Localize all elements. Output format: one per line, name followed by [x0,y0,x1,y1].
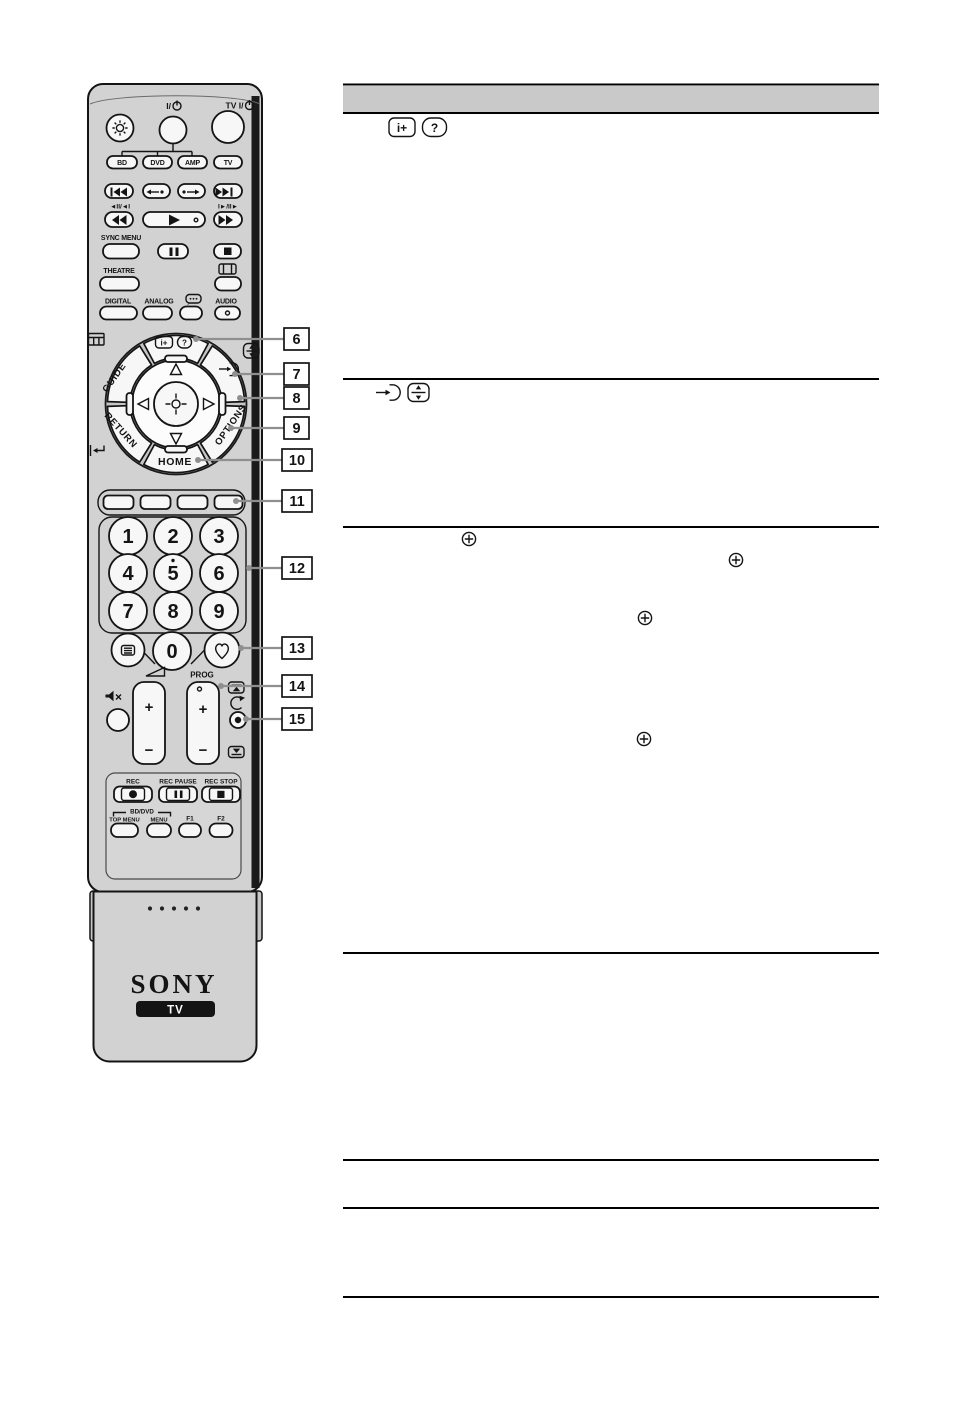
confirm-icon-2 [729,553,742,566]
subtitles-button [180,307,202,320]
svg-text:12: 12 [289,561,305,577]
svg-text:?: ? [431,121,438,135]
stop-icon [224,248,232,256]
svg-text:i+: i+ [397,121,407,135]
analog-label: ANALOG [144,299,174,306]
digit-0: 0 [166,641,177,663]
digit-7: 7 [122,601,133,623]
dpad-ridge-down [165,446,187,453]
digit-8: 8 [167,601,178,623]
volume-up-label: + [145,699,154,716]
dvd-label: DVD [150,160,164,167]
remote-illustration: SONY TV I/ TV I/ BD DVD AMP [88,84,262,1062]
function-table: i+ ? [343,85,879,1298]
confirm-icon-4 [637,732,650,745]
favorites-button [205,633,240,668]
prog-down-label: − [199,742,208,759]
sync-menu-label: SYNC MENU [101,235,141,242]
dpad-ridge-up [165,356,187,363]
confirm-icon-1 [462,532,475,545]
power-label: I/ [166,101,171,111]
sync-menu-button [103,244,139,259]
digit-2: 2 [167,526,178,548]
svg-text:9: 9 [292,421,300,437]
svg-text:i+: i+ [161,339,168,348]
f2-button [210,824,233,838]
tv-power-label: TV I/ [226,101,245,111]
dpad-ridge-left [127,393,134,415]
pause-button [158,244,188,259]
rec-button [114,787,152,803]
menu-button [147,824,171,838]
digit-1: 1 [122,526,133,548]
digit-5-dot [171,559,174,562]
tv-power-button [212,111,244,143]
f1-label: F1 [186,816,194,823]
tv-select-label: TV [224,160,233,167]
rec-pause-button [159,787,197,803]
yellow-button [178,496,208,510]
rec-label: REC [126,779,140,786]
prog-label: PROG [190,671,214,680]
digital-label: DIGITAL [105,299,132,306]
svg-text:6: 6 [292,332,300,348]
digital-button [100,307,137,320]
theatre-button [100,277,139,291]
rec-stop-icon [217,791,224,798]
amp-label: AMP [185,160,200,167]
digit-3: 3 [213,526,224,548]
table-header-bar [343,86,879,112]
analog-button [143,307,172,320]
remote-side-edge [252,96,260,888]
screen-position-icon [408,384,429,402]
input-select-icon [376,385,400,400]
digit-6: 6 [213,563,224,585]
digit-4: 4 [122,563,134,585]
power-button [160,117,187,144]
home-label: HOME [158,456,192,468]
confirm-button [154,382,198,426]
svg-text:10: 10 [289,453,305,469]
f2-label: F2 [217,816,225,823]
bd-dvd-label: BD/DVD [130,809,154,816]
svg-text:14: 14 [289,679,305,695]
wide-button [215,277,241,291]
svg-text:8: 8 [292,391,300,407]
audio-button [215,307,240,320]
audio-label: AUDIO [215,299,237,306]
mute-button [107,709,129,731]
theatre-label: THEATRE [103,268,135,275]
manual-page: SONY TV I/ TV I/ BD DVD AMP [0,0,964,1418]
rec-stop-label: REC STOP [204,779,238,786]
replay-button [143,184,170,198]
f1-button [179,824,201,838]
svg-text:7: 7 [292,367,300,383]
sony-logo: SONY [130,969,217,999]
tv-badge-label: TV [167,1005,184,1017]
digit-9: 9 [213,601,224,623]
bd-label: BD [117,160,127,167]
red-button [104,496,134,510]
advance-button [178,184,205,198]
info-plus-icon: i+ [389,118,415,137]
round-button-center [235,717,241,723]
svg-text:13: 13 [289,641,305,657]
rec-stop-button [202,787,240,803]
confirm-icon-3 [638,611,651,624]
svg-text:11: 11 [289,494,304,510]
rec-pause-label: REC PAUSE [159,779,197,786]
top-menu-button [111,824,138,838]
trick-left-label: ◄II/◄I [110,204,130,211]
digit-5: 5 [167,563,178,585]
trick-right-label: I►/II► [218,204,238,211]
backlight-button [107,115,134,142]
volume-down-label: − [145,742,154,759]
rec-dot-icon [129,790,137,798]
svg-text:15: 15 [289,712,305,728]
svg-text:?: ? [182,339,187,348]
dpad-ridge-right [219,393,226,415]
prog-up-label: + [199,701,208,718]
help-icon: ? [423,118,447,137]
green-button [141,496,171,510]
